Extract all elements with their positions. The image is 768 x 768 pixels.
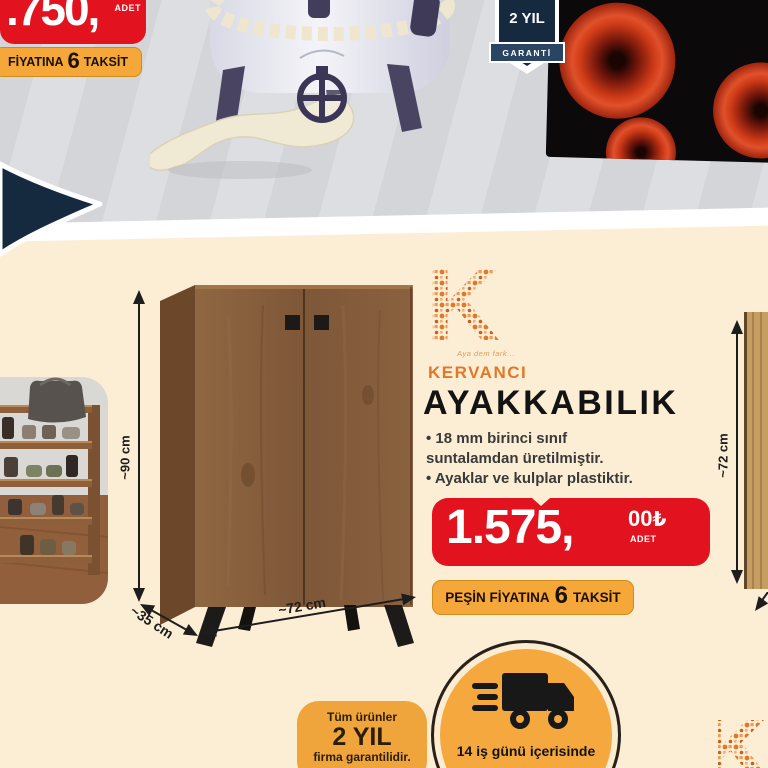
warranty-line2: 2 YIL <box>297 724 427 750</box>
feature-line: • 18 mm birinci sınıf <box>426 429 633 449</box>
delivery-badge: 14 iş günü içerisinde ücretsiz teslim <box>431 640 621 768</box>
feature-line: • Ayaklar ve kulplar plastiktir. <box>426 469 633 489</box>
price-integer: 1.575, <box>446 500 573 555</box>
feature-line: suntalamdan üretilmiştir. <box>426 449 633 469</box>
brand-tagline: Aya dem fark... <box>432 349 540 358</box>
price-decimals: 00₺ <box>628 506 666 532</box>
height-dimension-arrow <box>132 288 146 604</box>
brand-name: KERVANCI <box>428 363 527 383</box>
flyer-page: .750, ADET FİYATINA 6 TAKSİT 2 YIL GARAN… <box>0 0 768 768</box>
neighbor-height-dimension-arrow <box>730 318 744 586</box>
neighbor-height-dimension-label: ~72 cm <box>716 421 731 491</box>
lira-currency-symbol: ₺ <box>652 507 666 531</box>
price-decimal-digits: 00 <box>628 506 652 531</box>
installment-count: 6 <box>555 582 568 610</box>
kervanci-logo-icon: K <box>428 258 532 348</box>
product-title: AYAKKABILIK <box>423 384 678 423</box>
neighbor-product-image <box>744 312 768 589</box>
delivery-line1: 14 iş günü içerisinde <box>434 743 618 759</box>
product-features: • 18 mm birinci sınıf suntalamdan üretil… <box>426 429 633 489</box>
product-section: ~90 cm ~35 cm ~72 cm K <box>0 0 768 768</box>
svg-text:K: K <box>428 258 500 348</box>
installment-badge: PEŞİN FİYATINA 6 TAKSİT <box>432 580 634 615</box>
warranty-line1: Tüm ürünler <box>297 710 427 724</box>
height-dimension-label: ~90 cm <box>118 418 133 498</box>
warranty-line3: firma garantilidir. <box>297 750 427 764</box>
neighbor-partial-arrow <box>748 592 768 622</box>
price-unit: ADET <box>630 534 657 544</box>
installment-suffix: TAKSİT <box>573 590 621 605</box>
shoe-rack-photo <box>0 377 108 604</box>
svg-text:K: K <box>718 720 768 768</box>
warranty-pill: Tüm ürünler 2 YIL firma garantilidir. <box>297 701 427 768</box>
width-dimension-arrow <box>198 584 422 642</box>
neighbor-brand-logo-icon: K <box>718 720 768 768</box>
installment-prefix: PEŞİN FİYATINA <box>445 590 549 605</box>
price-badge: 1.575, 00₺ ADET <box>432 498 710 566</box>
truck-icon <box>472 667 582 737</box>
